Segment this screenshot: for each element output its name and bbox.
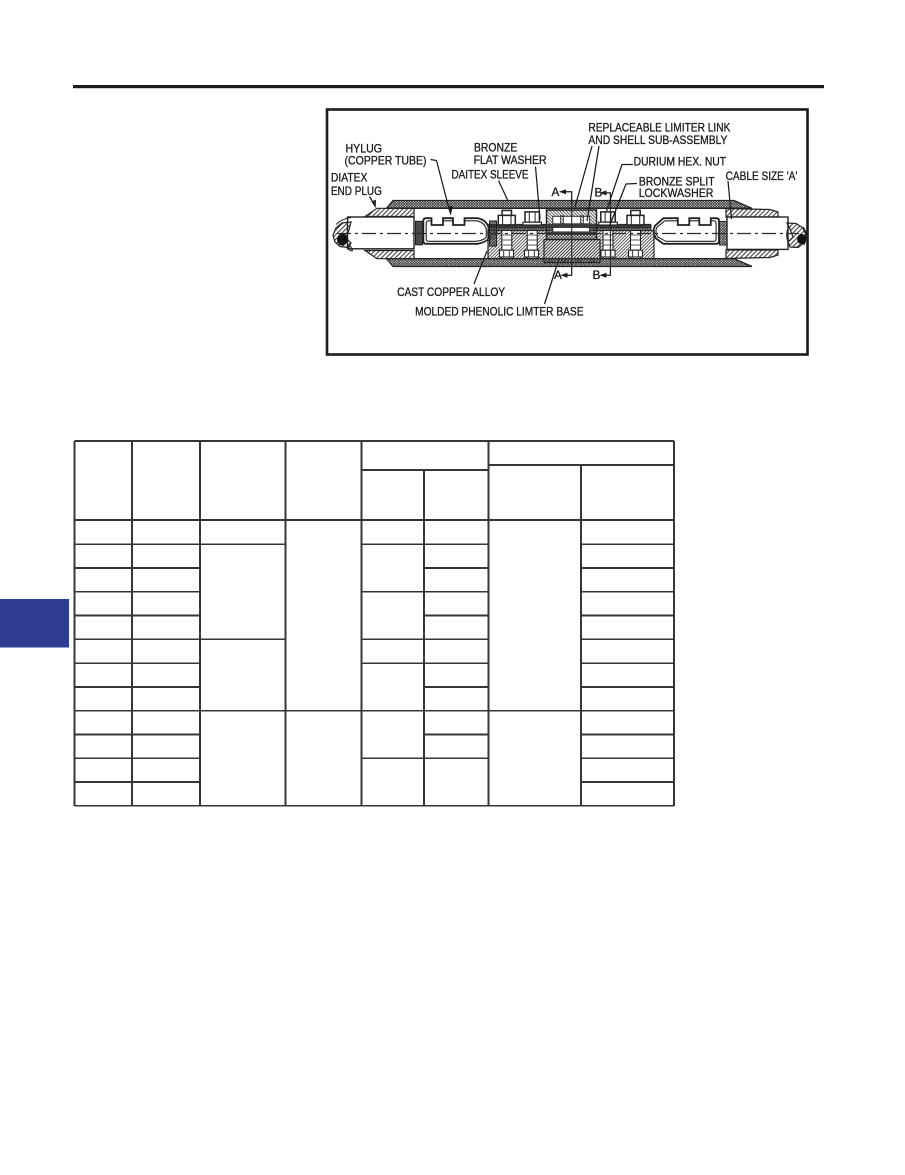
svg-text:CABLE SIZE 'A': CABLE SIZE 'A': [726, 169, 798, 183]
svg-text:DURIUM HEX. NUT: DURIUM HEX. NUT: [634, 154, 727, 168]
svg-text:LOCKWASHER: LOCKWASHER: [639, 186, 714, 200]
svg-text:MOLDED PHENOLIC LIMTER BASE: MOLDED PHENOLIC LIMTER BASE: [415, 305, 584, 319]
svg-text:B: B: [595, 186, 603, 200]
svg-text:B: B: [593, 268, 601, 282]
svg-text:A: A: [554, 268, 562, 282]
svg-text:(COPPER TUBE): (COPPER TUBE): [345, 153, 427, 167]
svg-text:AND SHELL SUB-ASSEMBLY: AND SHELL SUB-ASSEMBLY: [588, 133, 727, 147]
svg-text:FLAT WASHER: FLAT WASHER: [474, 153, 547, 167]
svg-text:DIATEX: DIATEX: [331, 171, 368, 185]
svg-text:END PLUG: END PLUG: [331, 184, 382, 198]
svg-text:CAST COPPER ALLOY: CAST COPPER ALLOY: [397, 285, 505, 299]
svg-text:A: A: [552, 185, 560, 199]
svg-text:DAITEX SLEEVE: DAITEX SLEEVE: [452, 168, 529, 182]
